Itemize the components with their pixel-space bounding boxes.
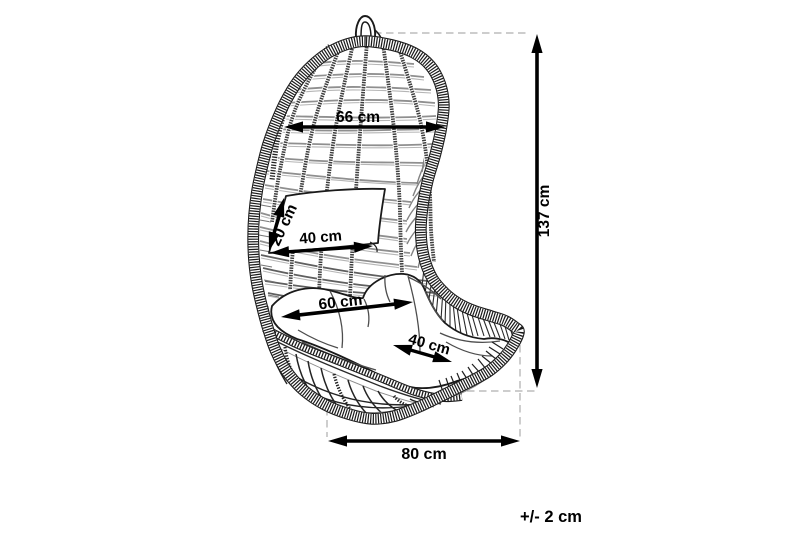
svg-text:66 cm: 66 cm <box>336 109 380 126</box>
svg-text:137 cm: 137 cm <box>536 185 553 238</box>
svg-text:40 cm: 40 cm <box>299 227 343 247</box>
svg-text:80 cm: 80 cm <box>401 446 446 463</box>
svg-text:+/- 2 cm: +/- 2 cm <box>520 508 582 526</box>
